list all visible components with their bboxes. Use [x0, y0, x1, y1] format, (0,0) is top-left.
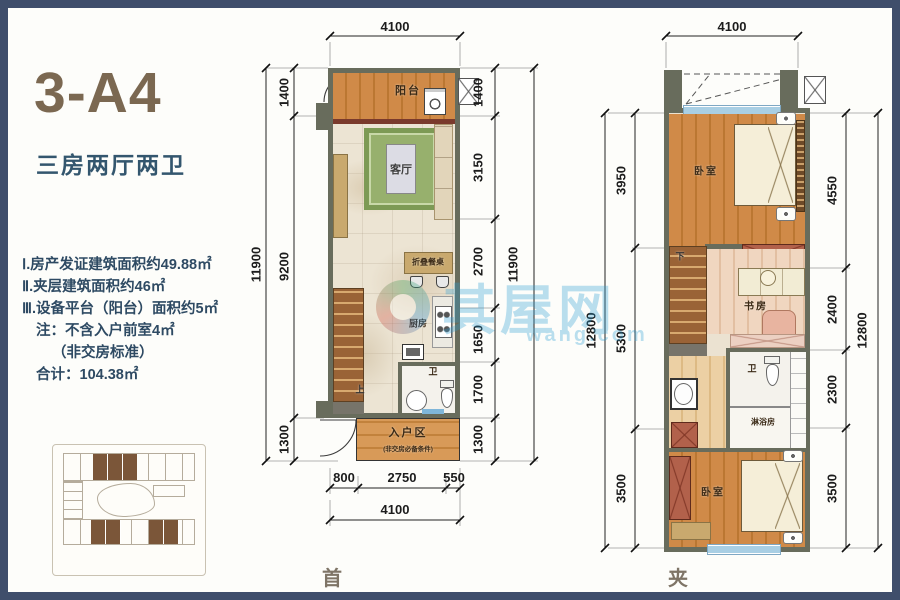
p2-dim-top: 4100 [697, 19, 767, 34]
p2-dim-right-0: 4550 [825, 156, 840, 226]
p2-bed2 [741, 460, 803, 532]
p1-tv-cabinet [333, 154, 348, 238]
floorplan-sheet: 3-A4 三房两厅两卫 Ⅰ.房产发证建筑面积约49.88㎡ Ⅱ.夹层建筑面积约4… [0, 0, 900, 600]
p1-dim-left-1: 9200 [277, 232, 292, 302]
p2-study-cushion [760, 270, 776, 286]
p1-bath-mat [422, 409, 444, 414]
p1-bath-label: 卫 [428, 365, 437, 378]
p1-caption: 首层平面图 [322, 562, 346, 600]
p2-red-box [671, 422, 698, 448]
watermark-domain: wang.com [526, 324, 648, 347]
p2-pink-hatch [730, 334, 805, 348]
p2-dim-right-2: 2300 [825, 355, 840, 425]
p1-balcony-label: 阳台 [395, 82, 421, 98]
p1-left-pillar-top [316, 103, 328, 130]
p1-dim-left-0: 1400 [277, 58, 292, 128]
p1-dim-right-1: 3150 [471, 133, 486, 203]
p2-bedroom1-label: 卧室 [694, 163, 718, 178]
p2-study-label: 书房 [744, 298, 768, 313]
p2-equipment-platform-icon [804, 76, 826, 104]
p1-sofa [434, 124, 453, 220]
p1-dim-bottom-2: 550 [419, 470, 489, 485]
p1-dim-right-0: 1400 [471, 58, 486, 128]
p1-dim-left-total: 11900 [249, 230, 264, 300]
p2-pillar-left [664, 70, 682, 110]
p2-dim-left-0: 3950 [614, 146, 629, 216]
p1-dim-right-5: 1300 [471, 405, 486, 475]
void-dashed-lines [684, 74, 794, 104]
p2-pillar-right [780, 70, 798, 110]
p1-left-pillar-bottom [316, 401, 328, 418]
p2-bench [671, 522, 711, 540]
p1-stair-landing [333, 402, 364, 414]
p1-toilet-tank [440, 380, 454, 388]
p2-bed1-fold [768, 127, 793, 203]
p2-closet-slats-1 [796, 120, 805, 212]
p2-wardrobe-hatch [669, 456, 691, 520]
watermark-logo-icon [376, 280, 430, 334]
p1-living-label: 客厅 [390, 161, 412, 177]
p1-dim-left-2: 1300 [277, 405, 292, 475]
p2-nightstand-1b [776, 207, 796, 221]
p2-nightstand-1a [776, 112, 796, 125]
washing-machine-icon [424, 88, 446, 115]
p2-bath-label: 卫 [747, 362, 756, 375]
watermark: 其屋网 wang.com [376, 264, 716, 352]
p2-fixture-column [790, 352, 806, 448]
p2-caption: 夹层平面图 [668, 562, 692, 600]
entry-door-arc [320, 420, 356, 456]
p1-stairs-up-label: 上 [355, 383, 364, 396]
p2-bottom-window [708, 545, 780, 554]
p2-shower-label: 淋浴房 [751, 417, 775, 428]
p2-dim-right-total: 12800 [855, 296, 870, 366]
p1-entry-label: 入户区 [389, 424, 428, 440]
p2-sink-icon [674, 383, 693, 405]
p2-nightstand-2b [783, 532, 803, 544]
p2-bed1 [734, 124, 796, 206]
p1-dim-top: 4100 [360, 19, 430, 34]
p2-stairs-down-label: 下 [675, 250, 684, 263]
p2-dim-right-3: 3500 [825, 454, 840, 524]
p2-dim-right-1: 2400 [825, 275, 840, 345]
p2-bedroom2-label: 卧室 [701, 484, 725, 499]
p1-sink-icon [406, 390, 427, 411]
p1-entry-note: (非交房必备条件) [383, 443, 433, 453]
p2-dim-left-2: 3500 [614, 454, 629, 524]
p1-dim-bottom-total: 4100 [360, 502, 430, 517]
p2-nightstand-2a [783, 450, 803, 462]
p2-toilet-tank [764, 356, 780, 364]
p2-bed2-fold [775, 463, 800, 529]
